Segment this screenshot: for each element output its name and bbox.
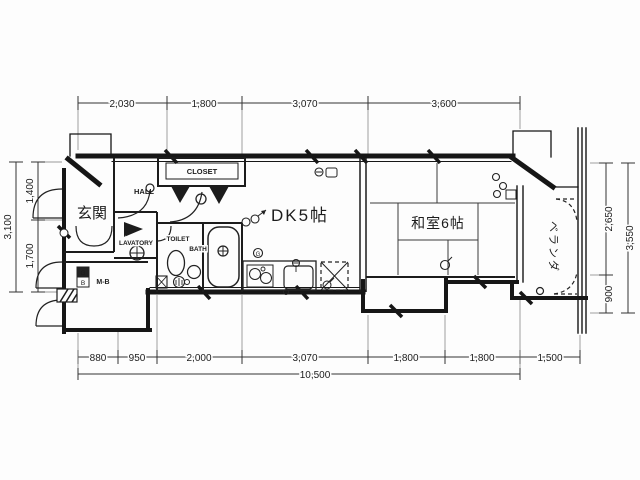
dimension-top-labels: 2,030 1,800 3,070 3,600 <box>109 99 456 110</box>
dim-top-3: 3,070 <box>292 99 317 110</box>
dim-bottom-2: 950 <box>129 353 146 364</box>
dim-bottom-total: 10,500 <box>300 370 331 381</box>
label-lavatory: LAVATORY <box>119 240 154 247</box>
outlet-icon-3 <box>493 174 500 181</box>
meter-box-door-swing-1 <box>36 262 62 288</box>
dim-top-2: 1,800 <box>191 99 216 110</box>
label-gas: G <box>80 270 85 277</box>
label-veranda: ベランダ <box>547 221 561 273</box>
label-washitsu: 和室6帖 <box>411 215 465 231</box>
entry-door-swing <box>33 189 62 218</box>
intercom-icon <box>60 229 68 237</box>
dim-bottom-1: 880 <box>90 353 107 364</box>
toilet-bowl-icon <box>168 251 185 276</box>
genkan-door-swing-left <box>76 226 94 246</box>
dim-bottom-4: 3,070 <box>292 353 317 364</box>
label-bath: BATH <box>189 246 207 253</box>
meter-box-door-swing-2 <box>36 300 62 326</box>
outlet-icon-2 <box>251 215 259 223</box>
exterior-walls <box>64 128 586 333</box>
outlet-icon-1 <box>242 218 250 226</box>
dim-right-total: 3,550 <box>625 225 636 250</box>
genkan-door-swing-right <box>94 226 112 246</box>
room-labels: 玄関 HALL CLOSET LAVATORY TOILET BATH M-B … <box>77 167 561 287</box>
veranda-drain-icon <box>537 288 544 295</box>
dim-bottom-7: 1,500 <box>537 353 562 364</box>
ac-bracket-icon <box>506 190 516 199</box>
dim-bottom-5: 1,800 <box>393 353 418 364</box>
label-meter-box: M-B <box>96 279 109 286</box>
dimension-right-labels: 2,650 900 3,550 <box>604 206 636 302</box>
label-gas-outlet: G <box>256 252 261 258</box>
dim-bottom-3: 2,000 <box>186 353 211 364</box>
dimension-bottom <box>78 295 580 380</box>
sanitary-fixtures <box>124 222 239 288</box>
bathtub-icon <box>208 227 239 287</box>
dim-right-2: 900 <box>604 285 615 302</box>
label-breaker: B <box>81 280 85 287</box>
dim-top-1: 2,030 <box>109 99 134 110</box>
door-swings <box>33 184 202 326</box>
floor-plan-drawing: 2,030 1,800 3,070 3,600 880 950 2, <box>0 0 640 480</box>
closet-fold-door-icon-1 <box>171 186 190 203</box>
meter-box-details <box>57 229 89 302</box>
washer-pan-icon <box>124 222 143 237</box>
dim-left-2: 1,700 <box>25 243 36 268</box>
label-closet: CLOSET <box>187 167 218 176</box>
dim-left-1: 1,400 <box>25 178 36 203</box>
outlet-icon-4 <box>500 183 507 190</box>
label-genkan: 玄関 <box>77 205 107 222</box>
label-toilet: TOILET <box>167 236 190 243</box>
label-dk: DK5帖 <box>271 206 329 225</box>
dim-top-4: 3,600 <box>431 99 456 110</box>
veranda-partition-bottom <box>554 272 577 294</box>
doorbell-icon <box>326 168 337 177</box>
tv-jack-icon <box>494 191 501 198</box>
toilet-drain-icon <box>185 280 190 285</box>
kitchen-fixtures <box>242 168 348 295</box>
toilet-tank-icon <box>188 266 201 279</box>
dim-right-1: 2,650 <box>604 206 615 231</box>
dimension-left-labels: 1,400 1,700 3,100 <box>3 178 36 268</box>
dim-left-total: 3,100 <box>3 214 14 239</box>
dim-bottom-6: 1,800 <box>469 353 494 364</box>
closet-fold-door-icon-2 <box>209 186 229 204</box>
label-hall: HALL <box>134 187 154 196</box>
floor-plan-page: 2,030 1,800 3,070 3,600 880 950 2, <box>0 0 640 480</box>
veranda-partition-top <box>556 199 577 222</box>
kitchen-sink-icon <box>284 266 313 289</box>
